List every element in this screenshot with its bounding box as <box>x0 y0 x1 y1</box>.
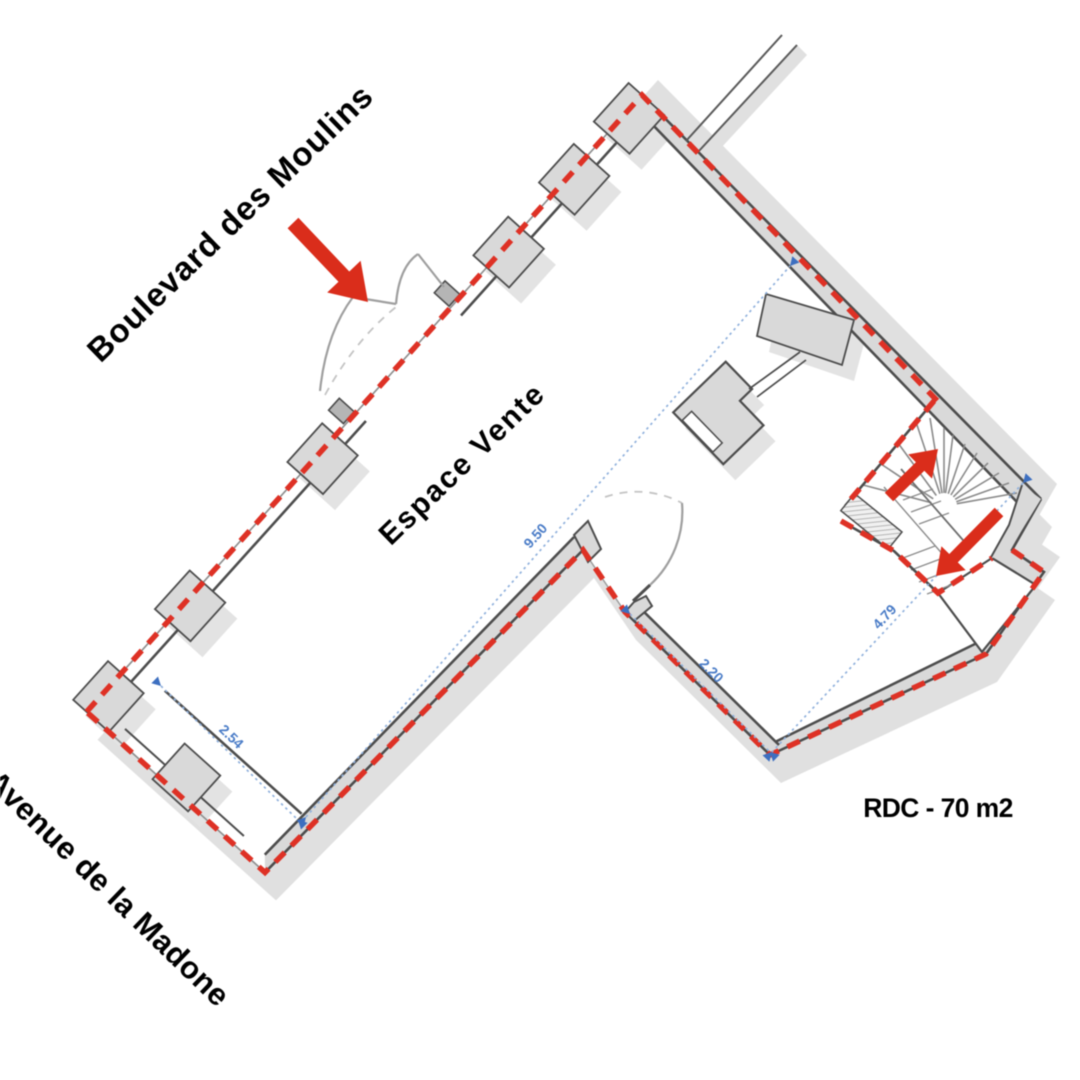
svg-text:RDC - 70 m2: RDC - 70 m2 <box>863 793 1013 823</box>
